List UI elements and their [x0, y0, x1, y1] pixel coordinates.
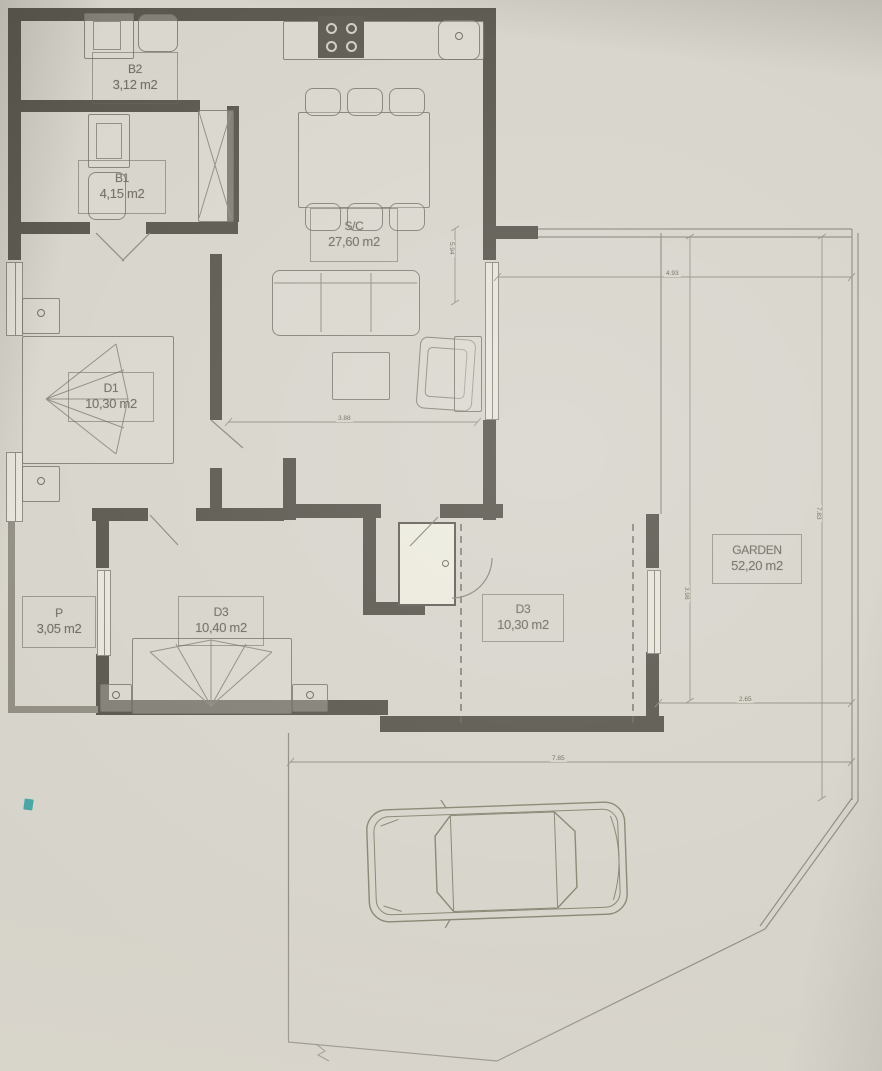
boundary-lines: [288, 229, 858, 1061]
room-area: 10,30 m2: [69, 396, 153, 413]
room-label-p: P 3,05 m2: [22, 596, 96, 648]
room-code: D3: [179, 605, 263, 621]
room-code: B2: [93, 62, 177, 78]
dimension-label: 4.93: [664, 270, 681, 277]
sofa-cushion-lines: [274, 273, 417, 332]
room-area: 3,12 m2: [93, 77, 177, 94]
wardrobe-cross: [199, 112, 231, 218]
room-code: P: [23, 606, 95, 622]
room-label-d3-west: D3 10,40 m2: [178, 596, 264, 646]
room-code: D1: [69, 381, 153, 397]
room-label-b2: B2 3,12 m2: [92, 52, 178, 104]
door-leaves: [96, 233, 492, 598]
room-area: 4,15 m2: [79, 186, 165, 203]
dimension-label: 7.85: [550, 755, 567, 762]
room-label-d3-east: D3 10,30 m2: [482, 594, 564, 642]
room-code: S/C: [311, 219, 397, 235]
dimension-label: 3.98: [683, 585, 690, 602]
room-area: 10,30 m2: [483, 617, 563, 634]
dimension-label: 2.65: [737, 696, 754, 703]
room-label-sc: S/C 27,60 m2: [310, 208, 398, 262]
room-code: B1: [79, 171, 165, 187]
room-label-b1: B1 4,15 m2: [78, 160, 166, 214]
room-area: 52,20 m2: [713, 558, 801, 575]
room-label-garden: GARDEN 52,20 m2: [712, 534, 802, 584]
room-code: GARDEN: [713, 543, 801, 559]
room-code: D3: [483, 602, 563, 618]
room-area: 10,40 m2: [179, 620, 263, 637]
room-label-d1: D1 10,30 m2: [68, 372, 154, 422]
floor-plan: B2 3,12 m2 B1 4,15 m2 S/C 27,60 m2 D1 10…: [0, 0, 882, 1071]
dimension-label: 5.94: [448, 240, 455, 257]
dimension-label: 3.88: [336, 415, 353, 422]
room-area: 3,05 m2: [23, 621, 95, 638]
car-icon: [366, 794, 628, 931]
dimension-lines: [225, 226, 855, 801]
dimension-label: 7.83: [815, 505, 822, 522]
bed-pillow-fan-d3: [150, 640, 272, 706]
scan-mark: [23, 798, 33, 810]
sketch-squiggle: [316, 1044, 329, 1061]
room-area: 27,60 m2: [311, 234, 397, 251]
